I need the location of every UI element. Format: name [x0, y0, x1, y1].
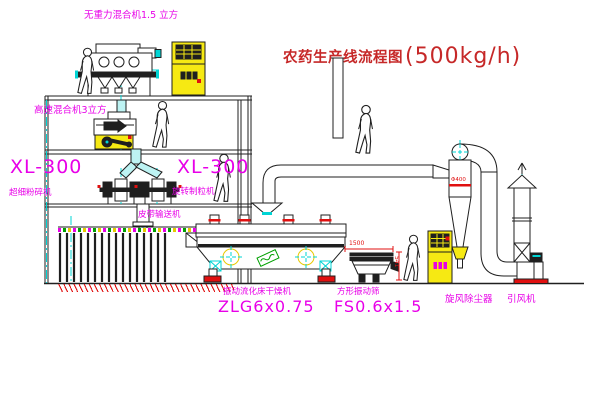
label-fluid-bed-dryer: 振动流化床干燥机 — [223, 288, 291, 297]
label-gravity-free-mixer: 无重力混合机1.5 立方 — [84, 11, 178, 21]
dim-cyclone-diameter: Φ400 — [451, 178, 466, 184]
title-text: 农药生产线流程图 — [283, 46, 403, 67]
label-granulator: 旋转制粒机 — [172, 188, 215, 197]
label-square-sieve-model: FS0.6x1.5 — [334, 299, 422, 315]
exhaust-duct — [263, 165, 449, 203]
cyclone-separator — [449, 144, 517, 276]
belt-conveyor-structure — [58, 227, 196, 282]
conveyor-deck-strip — [58, 228, 196, 232]
dim-sieve-length: 1500 — [349, 241, 364, 247]
label-pulverizer-model: XL-300 — [10, 158, 82, 177]
label-pulverizer: 超细粉碎机 — [9, 189, 52, 198]
pesticide-line-flow-diagram: 农药生产线流程图 (500kg/h) 无重力混合机1.5 立方 高速混合机3立方… — [0, 0, 600, 403]
label-square-sieve: 方形振动筛 — [337, 288, 380, 297]
label-granulator-model: XL-300 — [177, 158, 249, 177]
exhaust-stack — [508, 163, 536, 262]
diagram-title: 农药生产线流程图 (500kg/h) — [283, 44, 521, 69]
y-duct — [120, 149, 162, 178]
person-second-floor — [153, 101, 169, 147]
control-cabinet-ground — [428, 231, 452, 283]
person-ground — [404, 235, 420, 280]
label-belt-conveyor: 皮带输送机 — [138, 211, 181, 220]
label-cyclone: 旋风除尘器 — [445, 295, 493, 305]
label-high-speed-mixer: 高速混合机3立方 — [34, 106, 107, 116]
dim-sieve-height: 541 — [393, 256, 399, 267]
person-near-duct — [356, 105, 373, 153]
fluid-bed-dryer — [196, 203, 346, 282]
standpipe — [330, 58, 346, 138]
label-fluid-bed-dryer-model: ZLG6x0.75 — [218, 299, 315, 315]
title-capacity: (500kg/h) — [405, 44, 521, 69]
floor-hatch — [58, 284, 234, 292]
control-cabinet-top — [172, 42, 205, 95]
label-induced-draft-fan: 引风机 — [507, 295, 536, 305]
